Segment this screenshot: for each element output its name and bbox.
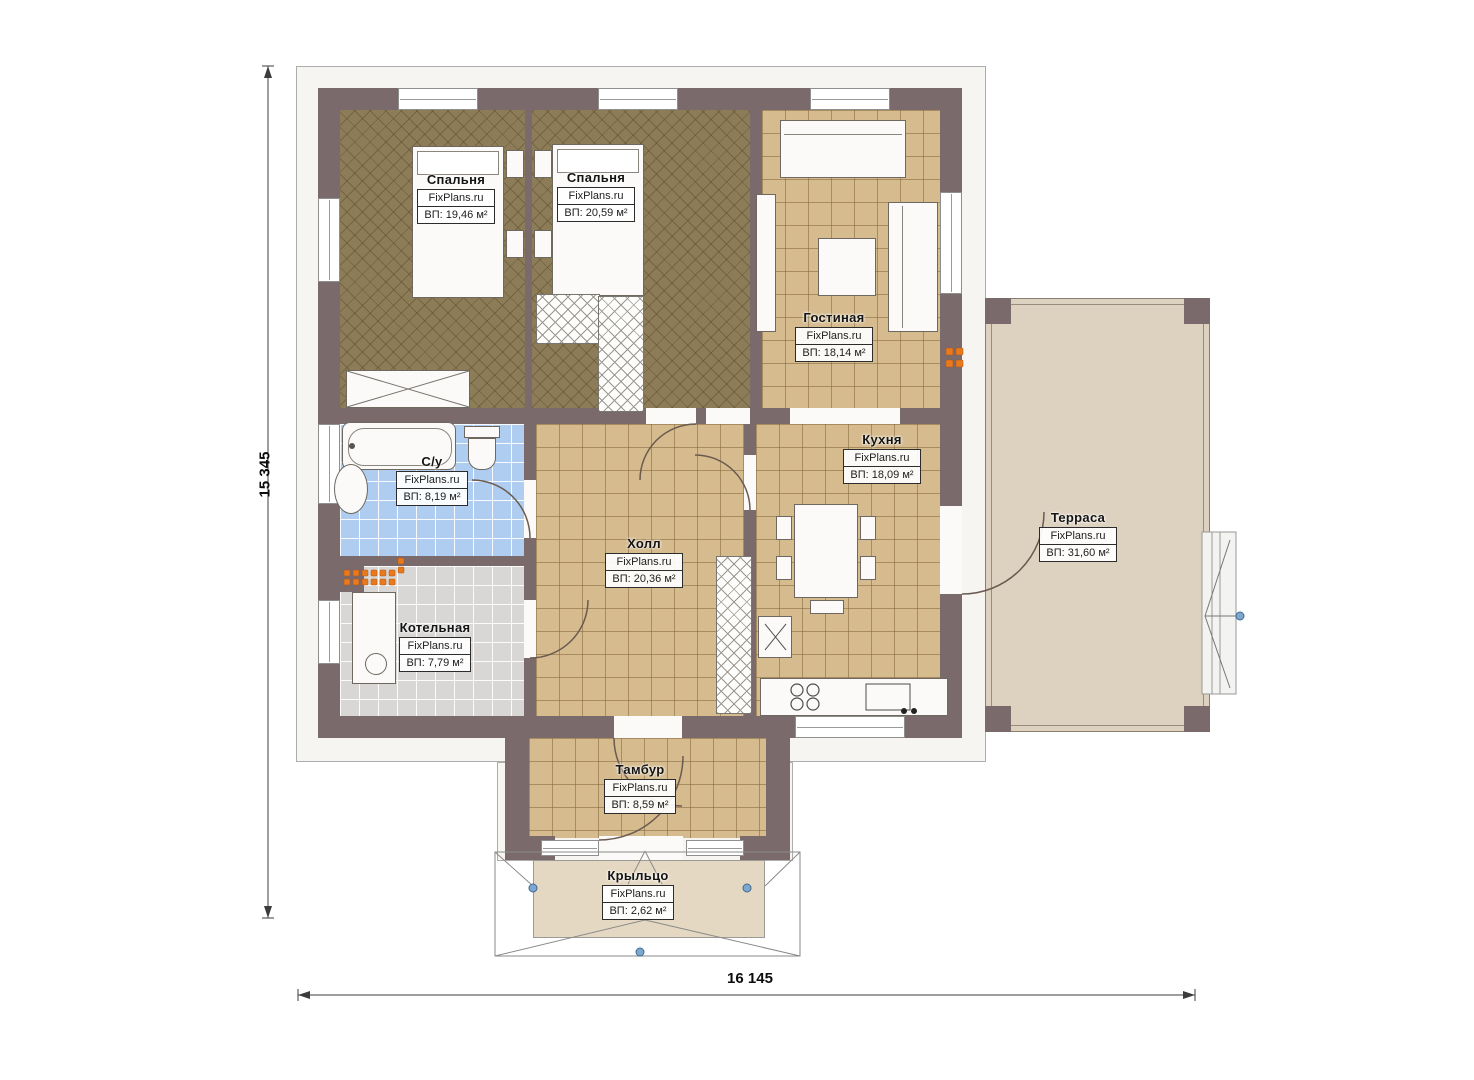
window-east-living xyxy=(940,192,962,294)
wall-east xyxy=(940,88,962,738)
door-opening-bedroom1 xyxy=(646,408,696,424)
room-label-porch: Крыльцо FixPlans.ru ВП: 2,62 м² xyxy=(588,868,688,920)
chair xyxy=(776,556,792,580)
door-opening-vestibule xyxy=(614,716,682,738)
room-name: Гостиная xyxy=(784,310,884,325)
room-brand: FixPlans.ru xyxy=(397,472,466,488)
room-label-bedroom-1: Спальня FixPlans.ru ВП: 19,46 м² xyxy=(408,172,504,224)
room-name: Котельная xyxy=(386,620,484,635)
room-brand: FixPlans.ru xyxy=(1040,528,1115,544)
room-label-vestibule: Тамбур FixPlans.ru ВП: 8,59 м² xyxy=(592,762,688,814)
closet-hatched xyxy=(598,296,644,412)
room-info-box: FixPlans.ru ВП: 2,62 м² xyxy=(602,885,673,920)
dimension-label-height: 15 345 xyxy=(257,420,274,530)
room-info-box: FixPlans.ru ВП: 8,59 м² xyxy=(604,779,675,814)
window-north-bedroom1 xyxy=(398,88,478,110)
duct-hatched xyxy=(716,556,752,714)
tv-stand xyxy=(756,194,776,332)
room-name: Кухня xyxy=(836,432,928,447)
chimney-block xyxy=(340,566,364,592)
terrace-post-sw xyxy=(985,706,1011,732)
window-north-living xyxy=(810,88,890,110)
wall-bath-boiler xyxy=(340,556,524,566)
dining-table xyxy=(794,504,858,598)
room-area: ВП: 2,62 м² xyxy=(603,902,672,919)
window-south-kitchen xyxy=(795,716,905,738)
door-opening-terrace xyxy=(940,506,962,594)
wall-vestibule-front-right xyxy=(740,836,790,860)
terrace-post-nw xyxy=(985,298,1011,324)
room-area: ВП: 8,19 м² xyxy=(397,488,466,505)
opening-living-kitchen xyxy=(790,408,900,424)
room-name: Спальня xyxy=(548,170,644,185)
door-opening-bedroom2 xyxy=(706,408,750,424)
door-opening-bathroom xyxy=(524,480,536,538)
wash-basin xyxy=(334,464,368,514)
room-brand: FixPlans.ru xyxy=(418,190,493,206)
window-west-boiler xyxy=(318,600,340,664)
wardrobe xyxy=(346,370,470,408)
coffee-table xyxy=(818,238,876,296)
room-brand: FixPlans.ru xyxy=(400,638,469,654)
room-name: С/у xyxy=(390,454,474,469)
room-brand: FixPlans.ru xyxy=(844,450,919,466)
window-vestibule-left xyxy=(541,840,599,856)
nightstand xyxy=(506,150,524,178)
room-label-bathroom: С/у FixPlans.ru ВП: 8,19 м² xyxy=(390,454,474,506)
room-name: Крыльцо xyxy=(588,868,688,883)
terrace-post-se xyxy=(1184,706,1210,732)
fridge xyxy=(758,616,792,658)
chair xyxy=(776,516,792,540)
room-label-bedroom-2: Спальня FixPlans.ru ВП: 20,59 м² xyxy=(548,170,644,222)
room-name: Спальня xyxy=(408,172,504,187)
room-brand: FixPlans.ru xyxy=(603,886,672,902)
room-label-living-room: Гостиная FixPlans.ru ВП: 18,14 м² xyxy=(784,310,884,362)
room-label-kitchen: Кухня FixPlans.ru ВП: 18,09 м² xyxy=(836,432,928,484)
room-info-box: FixPlans.ru ВП: 20,36 м² xyxy=(605,553,682,588)
room-info-box: FixPlans.ru ВП: 18,09 м² xyxy=(843,449,920,484)
room-name: Терраса xyxy=(1028,510,1128,525)
room-info-box: FixPlans.ru ВП: 31,60 м² xyxy=(1039,527,1116,562)
room-brand: FixPlans.ru xyxy=(558,188,633,204)
room-label-boiler-room: Котельная FixPlans.ru ВП: 7,79 м² xyxy=(386,620,484,672)
room-area: ВП: 7,79 м² xyxy=(400,654,469,671)
window-north-bedroom2 xyxy=(598,88,678,110)
room-area: ВП: 18,14 м² xyxy=(796,344,871,361)
nightstand xyxy=(506,230,524,258)
door-opening-kitchen xyxy=(744,455,756,510)
chair xyxy=(810,600,844,614)
boiler-dial xyxy=(365,653,387,675)
wall-bath-hall xyxy=(524,424,536,716)
loveseat xyxy=(888,202,938,332)
door-opening-boiler xyxy=(524,600,536,658)
room-brand: FixPlans.ru xyxy=(606,554,681,570)
room-name: Тамбур xyxy=(592,762,688,777)
chair xyxy=(860,556,876,580)
room-name: Холл xyxy=(596,536,692,551)
toilet-tank xyxy=(464,426,500,438)
room-area: ВП: 8,59 м² xyxy=(605,796,674,813)
room-info-box: FixPlans.ru ВП: 20,59 м² xyxy=(557,187,634,222)
room-area: ВП: 18,09 м² xyxy=(844,466,919,483)
room-info-box: FixPlans.ru ВП: 19,46 м² xyxy=(417,189,494,224)
room-label-terrace: Терраса FixPlans.ru ВП: 31,60 м² xyxy=(1028,510,1128,562)
kitchen-counter xyxy=(760,678,948,716)
nightstand xyxy=(534,230,552,258)
room-area: ВП: 19,46 м² xyxy=(418,206,493,223)
door-opening-entrance xyxy=(599,836,683,860)
window-west-bedroom1 xyxy=(318,198,340,282)
room-brand: FixPlans.ru xyxy=(796,328,871,344)
room-brand: FixPlans.ru xyxy=(605,780,674,796)
dimension-label-width: 16 145 xyxy=(700,970,800,987)
chair xyxy=(860,516,876,540)
terrace-post-ne xyxy=(1184,298,1210,324)
room-area: ВП: 31,60 м² xyxy=(1040,544,1115,561)
closet-hatched xyxy=(536,294,600,344)
sofa xyxy=(780,120,906,178)
room-label-hall: Холл FixPlans.ru ВП: 20,36 м² xyxy=(596,536,692,588)
wall-bedroom-divider xyxy=(525,110,532,408)
room-area: ВП: 20,36 м² xyxy=(606,570,681,587)
room-info-box: FixPlans.ru ВП: 8,19 м² xyxy=(396,471,467,506)
room-info-box: FixPlans.ru ВП: 7,79 м² xyxy=(399,637,470,672)
window-vestibule-right xyxy=(686,840,744,856)
room-info-box: FixPlans.ru ВП: 18,14 м² xyxy=(795,327,872,362)
room-area: ВП: 20,59 м² xyxy=(558,204,633,221)
floor-plan: Спальня FixPlans.ru ВП: 19,46 м² Спальня… xyxy=(0,0,1474,1080)
